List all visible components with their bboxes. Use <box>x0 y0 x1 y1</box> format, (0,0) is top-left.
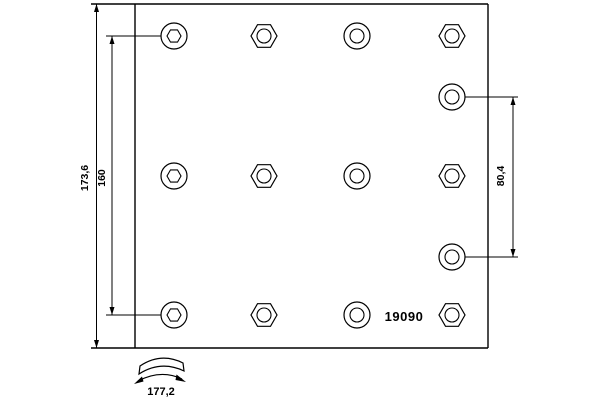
rivet-hole <box>344 163 370 189</box>
part-number-label: 19090 <box>385 309 424 324</box>
arrowhead-up-icon <box>511 97 516 105</box>
arrowhead-left-icon <box>134 377 144 385</box>
rivet-hole <box>251 25 277 48</box>
dimension-right-hole-spacing: 80,4 <box>465 97 518 257</box>
arc-width-label: 177,2 <box>147 386 175 398</box>
rivet-hole-inner <box>257 308 271 322</box>
rivet-hole-inner <box>350 169 364 183</box>
rivet-hole <box>161 302 187 328</box>
arc-dimension-line <box>138 374 182 381</box>
rivet-hole <box>161 23 187 49</box>
rivet-hole-inner <box>167 170 181 182</box>
arrowhead-down-icon <box>110 307 115 315</box>
arrowhead-down-icon <box>511 249 516 257</box>
rivet-hole-inner <box>257 169 271 183</box>
rivet-hole <box>251 165 277 188</box>
rivet-hole-inner <box>167 30 181 42</box>
rivet-hole <box>439 304 465 327</box>
arrowhead-up-icon <box>110 36 115 44</box>
rivet-hole-inner <box>350 308 364 322</box>
drawing-page: 173,6 160 80,4 19090 177,2 <box>0 0 600 400</box>
rivet-hole <box>439 165 465 188</box>
rivet-hole-inner <box>445 169 459 183</box>
brake-lining-drawing-canvas: 173,6 160 80,4 19090 177,2 <box>0 0 600 400</box>
arc-width-symbol: 177,2 <box>134 358 186 398</box>
rivet-hole-inner <box>167 309 181 321</box>
rivet-hole-inner <box>350 29 364 43</box>
lining-plate-outline <box>91 4 488 348</box>
left-hole-spacing-label: 160 <box>96 169 108 187</box>
rivet-hole <box>439 25 465 48</box>
rivet-hole <box>344 23 370 49</box>
right-hole-spacing-label: 80,4 <box>495 166 507 187</box>
arrowhead-up-icon <box>94 4 99 12</box>
rivet-hole <box>344 302 370 328</box>
arrowhead-down-icon <box>94 340 99 348</box>
total-height-label: 173,6 <box>79 165 91 191</box>
rivet-hole <box>439 84 465 110</box>
arrowhead-right-icon <box>176 375 187 383</box>
rivet-hole-inner <box>445 29 459 43</box>
rivet-hole-inner <box>445 90 459 104</box>
rivet-hole-inner <box>445 250 459 264</box>
rivet-hole-inner <box>445 308 459 322</box>
curved-band-icon <box>139 358 184 374</box>
rivet-hole <box>439 244 465 270</box>
rivet-hole-inner <box>257 29 271 43</box>
rivet-hole <box>251 304 277 327</box>
rivet-hole <box>161 163 187 189</box>
dimension-left-hole-spacing: 160 <box>96 36 161 315</box>
rivet-holes <box>161 23 465 328</box>
